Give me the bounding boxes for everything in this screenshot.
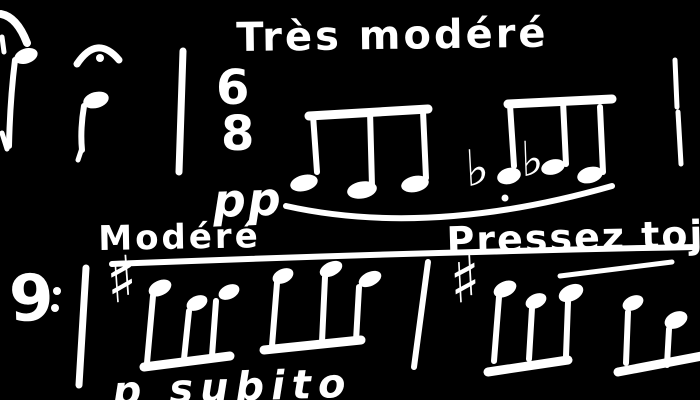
notehead — [662, 308, 691, 333]
barline — [678, 112, 681, 164]
note-stem — [529, 308, 532, 359]
fermata-dot-icon — [96, 54, 104, 62]
note-stem — [510, 105, 514, 166]
flat-icon: ♭ — [464, 143, 490, 194]
handwritten-score: Très modéré 6 8 pp Modéré Pressez tojo p… — [0, 0, 700, 400]
beam — [618, 356, 700, 372]
barline — [675, 60, 677, 107]
note-stem — [566, 302, 568, 356]
phrase-slur — [286, 186, 612, 218]
dot — [502, 195, 509, 202]
beam — [488, 360, 568, 372]
notehead — [491, 277, 519, 301]
note-stem — [322, 277, 325, 342]
note-stem — [423, 111, 426, 178]
notehead — [620, 292, 646, 314]
slur-left-edge — [1, 14, 27, 43]
stem-flick — [2, 133, 7, 149]
note-stem — [147, 296, 153, 363]
note-stem — [212, 301, 216, 356]
notehead — [288, 172, 319, 194]
note-group-2 — [495, 99, 612, 187]
note-stem — [81, 106, 84, 150]
note-stem — [563, 101, 566, 164]
notehead — [556, 280, 586, 305]
note-stem — [626, 312, 628, 363]
barline — [414, 262, 428, 367]
beam — [508, 99, 612, 104]
bass-clef-icon: 9 — [8, 266, 55, 332]
notehead — [495, 165, 522, 187]
tick-left-edge — [2, 37, 4, 52]
dynamic-marking-subito: p subito — [112, 364, 353, 400]
sharp-icon: ♯ — [104, 248, 139, 314]
note-stem — [356, 287, 359, 341]
sharp-icon: ♯ — [448, 248, 482, 314]
note-stem — [313, 115, 317, 172]
bass-clef-dot — [53, 287, 61, 295]
note-stem — [184, 311, 189, 359]
note-stem — [600, 107, 603, 172]
notehead — [216, 281, 242, 303]
time-signature-numerator: 6 — [216, 64, 249, 112]
note-group-3 — [144, 276, 242, 367]
note-stem — [9, 60, 15, 146]
line-segment — [560, 262, 672, 276]
notehead — [317, 258, 345, 281]
note-group-5 — [488, 277, 586, 372]
tempo-marking-top: Très modéré — [236, 14, 549, 58]
note-stem — [494, 297, 499, 361]
note-stem — [370, 111, 372, 186]
time-signature-denominator: 8 — [221, 110, 254, 158]
note-group-1 — [288, 109, 430, 201]
barline — [79, 268, 86, 385]
beam — [264, 340, 361, 350]
note-stem — [272, 283, 277, 346]
notehead — [523, 290, 549, 312]
note-group-4 — [264, 258, 384, 350]
expression-marking-pressez: Pressez tojo — [446, 215, 700, 260]
barline — [179, 51, 183, 172]
notation-strokes — [0, 0, 700, 400]
flat-icon: ♭ — [520, 135, 544, 184]
note-group-6 — [618, 292, 700, 372]
stem-flick — [78, 148, 82, 160]
